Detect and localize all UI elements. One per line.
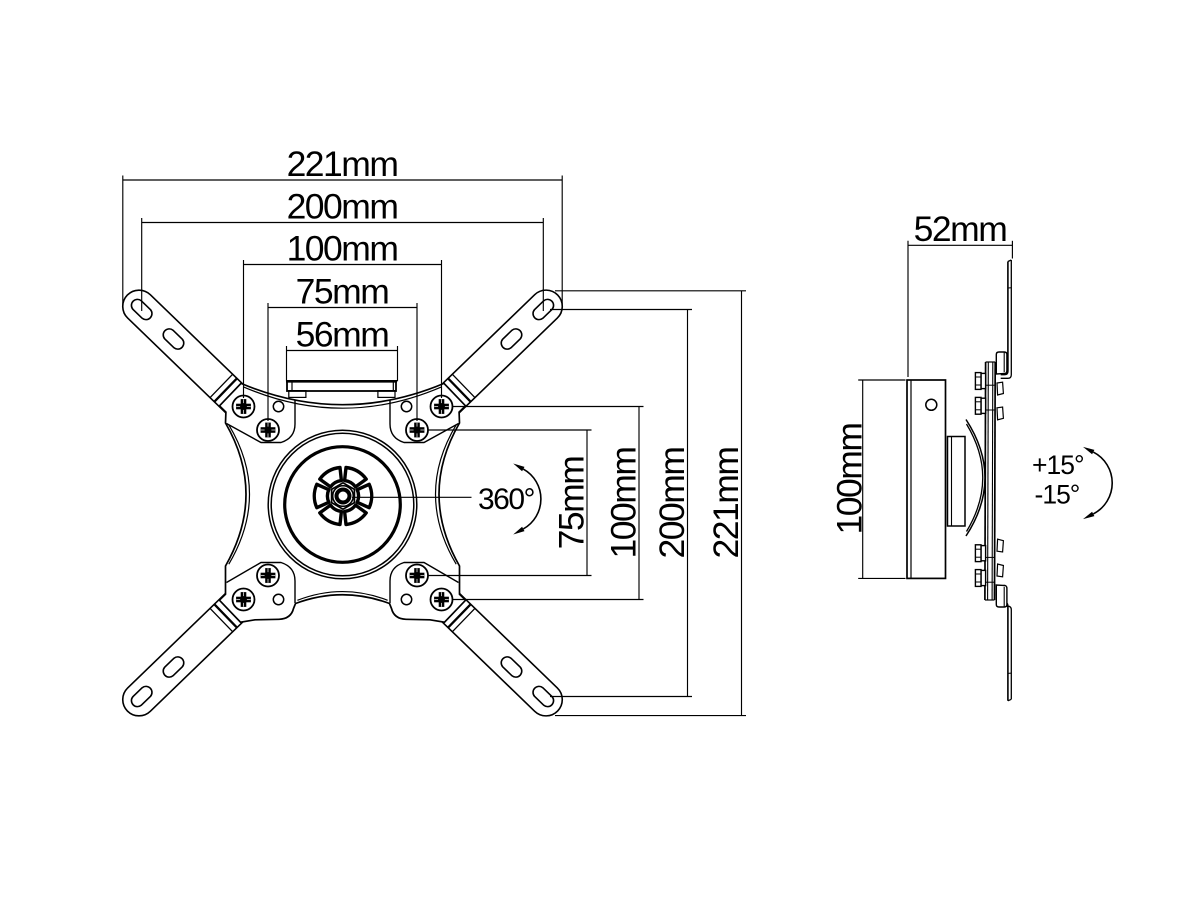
svg-text:200mm: 200mm: [287, 186, 398, 226]
svg-text:100mm: 100mm: [287, 228, 398, 268]
svg-text:+15°: +15°: [1032, 450, 1084, 480]
svg-text:100mm: 100mm: [830, 424, 870, 535]
svg-text:200mm: 200mm: [652, 448, 692, 559]
svg-text:75mm: 75mm: [552, 457, 592, 550]
svg-text:221mm: 221mm: [706, 448, 746, 559]
svg-text:360°: 360°: [478, 483, 535, 516]
svg-text:52mm: 52mm: [914, 209, 1007, 249]
svg-text:221mm: 221mm: [287, 144, 398, 184]
svg-text:75mm: 75mm: [296, 271, 389, 311]
svg-text:56mm: 56mm: [296, 314, 389, 354]
svg-text:-15°: -15°: [1035, 480, 1080, 510]
svg-text:100mm: 100mm: [604, 448, 644, 559]
